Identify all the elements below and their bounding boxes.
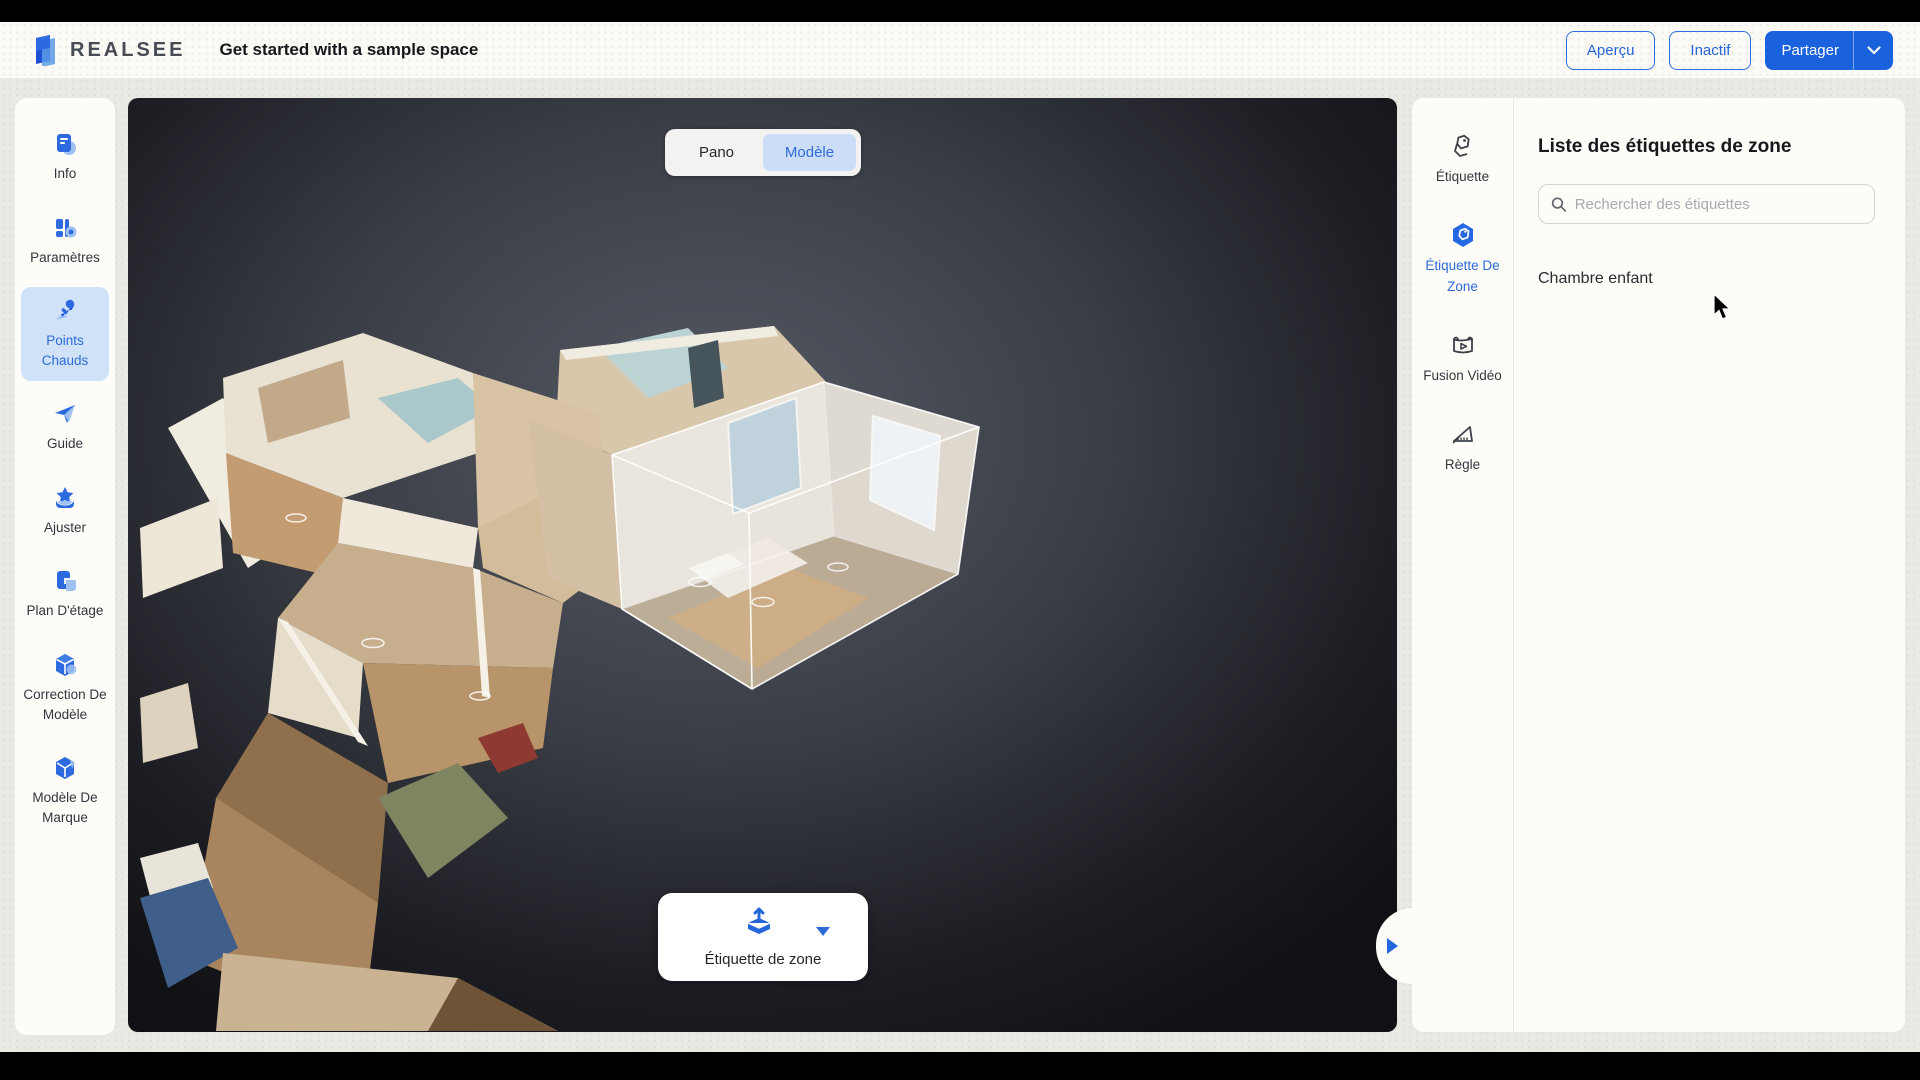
left-sidebar: Info Paramètres Points Chauds	[15, 98, 115, 1035]
letterbox-top	[0, 0, 1920, 22]
triangle-right-icon	[1387, 938, 1398, 954]
sidebar-item-parametres[interactable]: Paramètres	[21, 204, 109, 279]
sidebar-item-label: Points Chauds	[23, 331, 107, 370]
tag-icon	[1449, 132, 1477, 160]
adjust-icon	[52, 485, 78, 511]
zone-box-icon	[744, 907, 774, 937]
preview-button[interactable]: Aperçu	[1566, 31, 1656, 70]
zone-list: Chambre enfant	[1538, 264, 1875, 294]
right-panel: Étiquette Étiquette De Zone	[1412, 98, 1905, 1032]
zone-labels-panel: Liste des étiquettes de zone Chambre enf…	[1514, 98, 1905, 1032]
search-icon	[1551, 196, 1567, 213]
tool-etiquette[interactable]: Étiquette	[1415, 122, 1511, 197]
sidebar-item-label: Info	[54, 164, 77, 184]
tool-label: Fusion Vidéo	[1423, 366, 1502, 386]
triangle-down-icon[interactable]	[816, 927, 830, 936]
sidebar-item-points-chauds[interactable]: Points Chauds	[21, 287, 109, 381]
tool-etiquette-de-zone[interactable]: Étiquette De Zone	[1415, 211, 1511, 307]
sidebar-item-info[interactable]: Info	[21, 120, 109, 195]
mode-modele[interactable]: Modèle	[763, 134, 856, 171]
tool-label: Étiquette De Zone	[1417, 256, 1509, 297]
mode-pano[interactable]: Pano	[670, 134, 763, 171]
settings-icon	[52, 215, 78, 241]
zone-tag-icon	[1449, 221, 1477, 249]
zone-label-tool-button[interactable]: Étiquette de zone	[658, 893, 868, 981]
sidebar-item-label: Paramètres	[30, 248, 100, 268]
share-split-button: Partager	[1765, 31, 1893, 70]
sidebar-item-label: Ajuster	[44, 518, 86, 538]
header-actions: Aperçu Inactif Partager	[1566, 31, 1893, 70]
search-box[interactable]	[1538, 184, 1875, 224]
inactive-button[interactable]: Inactif	[1669, 31, 1751, 70]
sidebar-item-label: Correction De Modèle	[23, 685, 107, 724]
tool-label: Règle	[1445, 455, 1480, 475]
share-dropdown-button[interactable]	[1853, 31, 1893, 70]
model-viewport-3d[interactable]: Pano Modèle Étiquette de zone	[128, 98, 1397, 1032]
model-correction-icon	[52, 652, 78, 678]
tool-fusion-video[interactable]: Fusion Vidéo	[1415, 321, 1511, 396]
realsee-logo: REALSEE	[30, 34, 185, 66]
brand-name: REALSEE	[70, 39, 185, 62]
page-title: Get started with a sample space	[219, 40, 478, 60]
chevron-down-icon	[1867, 46, 1881, 55]
tool-label: Étiquette	[1436, 167, 1489, 187]
sidebar-item-label: Plan D'étage	[27, 601, 104, 621]
zone-tool-label: Étiquette de zone	[658, 951, 868, 968]
ruler-icon	[1449, 420, 1477, 448]
sidebar-item-plan-detage[interactable]: Plan D'étage	[21, 557, 109, 632]
sidebar-item-label: Modèle De Marque	[23, 788, 107, 827]
annotation-tool-strip: Étiquette Étiquette De Zone	[1412, 98, 1514, 1032]
sidebar-item-label: Guide	[47, 434, 83, 454]
video-fusion-icon	[1449, 331, 1477, 359]
guide-plane-icon	[52, 401, 78, 427]
sidebar-item-modele-de-marque[interactable]: Modèle De Marque	[21, 744, 109, 838]
letterbox-bottom	[0, 1052, 1920, 1080]
dollhouse-model	[128, 98, 1397, 1032]
floorplan-icon	[52, 568, 78, 594]
zone-list-item[interactable]: Chambre enfant	[1538, 264, 1875, 294]
search-input[interactable]	[1575, 196, 1862, 213]
mouse-cursor	[1712, 293, 1734, 321]
sidebar-item-correction-de-modele[interactable]: Correction De Modèle	[21, 641, 109, 735]
tool-regle[interactable]: Règle	[1415, 410, 1511, 485]
header: REALSEE Get started with a sample space …	[0, 22, 1920, 78]
info-icon	[52, 131, 78, 157]
sidebar-item-ajuster[interactable]: Ajuster	[21, 474, 109, 549]
main-area: Info Paramètres Points Chauds	[0, 78, 1920, 1052]
realsee-logo-icon	[30, 34, 60, 66]
sidebar-item-guide[interactable]: Guide	[21, 390, 109, 465]
view-mode-toggle: Pano Modèle	[665, 129, 861, 176]
hotspot-pin-icon	[52, 298, 78, 324]
share-button[interactable]: Partager	[1765, 31, 1853, 70]
brand-model-icon	[52, 755, 78, 781]
zone-list-title: Liste des étiquettes de zone	[1538, 136, 1875, 158]
